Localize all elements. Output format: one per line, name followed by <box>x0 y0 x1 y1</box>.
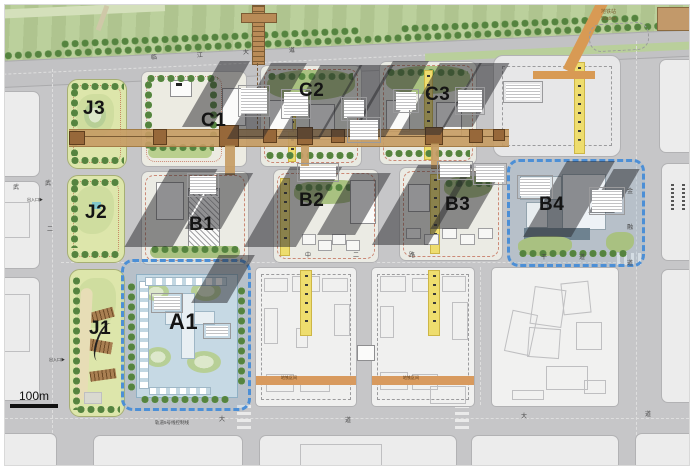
parcel-label-j2: J2 <box>85 203 107 222</box>
city-block <box>5 277 40 401</box>
road-label-middle: 中 <box>305 253 311 259</box>
building-outline <box>5 294 30 352</box>
metro-section-note: 地铁区间 <box>281 375 297 380</box>
city-block <box>5 91 40 177</box>
road-label-top: 大 <box>243 50 249 56</box>
development-block <box>491 267 619 407</box>
building-outline <box>560 281 591 316</box>
annotation-box <box>393 89 419 113</box>
parcel-label-c3: C3 <box>425 85 450 104</box>
annotation-box <box>238 85 270 117</box>
road-label-top: 临 <box>151 55 157 61</box>
retail-strip <box>139 281 149 389</box>
lot-code-text <box>682 184 685 212</box>
parcel-label-b2: B2 <box>299 191 324 210</box>
deck-structure <box>153 129 167 145</box>
building-outline <box>576 322 602 350</box>
tree-row <box>76 404 120 415</box>
rail-control-note: 轨道5号线控制线 <box>155 420 189 426</box>
building-outline <box>264 308 278 344</box>
city-block <box>259 435 457 465</box>
sports-court <box>84 392 102 404</box>
metro-corridor <box>256 376 356 385</box>
deck-structure <box>69 131 85 145</box>
building-outline <box>430 386 466 404</box>
annotation-box <box>503 81 543 103</box>
tree-row <box>70 155 124 166</box>
building-outline <box>5 202 30 238</box>
city-block <box>661 163 689 261</box>
parcel-label-a1: A1 <box>169 311 198 333</box>
lot-code-text <box>671 184 674 212</box>
city-block <box>471 435 619 465</box>
station-label-line1: 地铁站 <box>601 9 617 16</box>
metro-section-note: 地铁区间 <box>403 375 419 380</box>
city-block <box>659 59 689 153</box>
parcel-label-b4: B4 <box>539 195 564 214</box>
building-outline <box>300 444 382 465</box>
entry-note-j1: 出入口▶ <box>49 357 65 362</box>
metro-entrance <box>357 345 375 361</box>
building-outline <box>380 306 394 338</box>
deck-structure <box>493 129 505 141</box>
site-plan-map: J3 J2 J1 C1 C2 C3 B1 B2 B3 B4 A1 临 江 大 道… <box>5 5 689 465</box>
road-label-west: 武 <box>13 185 19 191</box>
scale-bar <box>10 404 58 408</box>
building-outline <box>334 304 350 336</box>
greenway-strip <box>300 270 312 336</box>
park-j3 <box>67 79 127 169</box>
tree-row <box>518 248 628 259</box>
annotation-box <box>203 323 231 339</box>
metro-corridor <box>372 376 474 385</box>
building-outline <box>380 276 406 292</box>
road-center-line <box>52 69 53 433</box>
pedestrian-link <box>533 71 595 79</box>
crosswalk <box>455 405 469 431</box>
road-center-line <box>480 267 481 405</box>
building-outline <box>322 278 348 292</box>
road-label-middle: 二 <box>353 253 359 259</box>
parcel-label-c2: C2 <box>299 81 324 100</box>
annotation-box <box>347 117 381 143</box>
building-outline <box>546 366 588 390</box>
greenway-strip <box>428 270 440 336</box>
road-label-middle: 路 <box>409 253 415 259</box>
road-label-top: 江 <box>197 53 203 59</box>
terrace-steps <box>89 368 116 382</box>
parcel-label-j1: J1 <box>89 319 111 338</box>
residential-block <box>371 267 475 407</box>
annotation-box <box>473 163 507 185</box>
road-label-middle-east: 道 <box>579 255 585 261</box>
building-outline <box>584 380 606 394</box>
building-outline <box>512 390 544 400</box>
tree-row <box>69 184 80 248</box>
park-j1 <box>69 269 125 417</box>
station-outline <box>588 21 649 52</box>
city-block <box>5 181 40 269</box>
residential-block <box>255 267 357 407</box>
road-label-bottom: 大 <box>521 414 527 420</box>
road-label-right: 道 <box>627 261 633 267</box>
tree-row <box>265 150 355 161</box>
annotation-box <box>187 173 219 197</box>
tree-row <box>70 249 120 260</box>
city-block <box>635 433 689 465</box>
annotation-box <box>589 187 625 215</box>
spine-branch <box>225 145 235 175</box>
road-label-bottom: 道 <box>345 418 351 424</box>
annotation-box <box>297 163 339 182</box>
master-plan-screenshot: J3 J2 J1 C1 C2 C3 B1 B2 B3 B4 A1 临 江 大 道… <box>0 0 694 470</box>
tree-row <box>236 286 247 386</box>
building-outline <box>264 278 288 292</box>
station-building <box>657 7 689 31</box>
station-label: 地铁站 Station <box>601 9 617 22</box>
parcel-label-c1: C1 <box>201 111 226 130</box>
road-label-left: 武 <box>45 181 51 187</box>
road-label-bottom: 大 <box>219 417 225 423</box>
tree-row <box>140 394 230 405</box>
road-label-bottom: 道 <box>645 412 651 418</box>
city-block <box>93 435 243 465</box>
road-label-right: 融 <box>627 225 633 231</box>
road-label-right: 金 <box>627 189 633 195</box>
annotation-box <box>437 161 473 180</box>
entry-note-j2: 出入口▶ <box>27 197 43 202</box>
tree-row <box>126 282 137 392</box>
parcel-label-j3: J3 <box>83 99 105 118</box>
tree-row <box>71 276 82 410</box>
station-label-line2: Station <box>601 16 617 23</box>
road-label-left: 二 <box>47 227 53 233</box>
building-outline <box>442 276 466 292</box>
tree-row <box>384 148 470 159</box>
deck-structure <box>469 129 483 143</box>
parcel-label-b3: B3 <box>445 195 470 214</box>
scale-label: 100m <box>19 389 49 403</box>
city-block <box>661 269 689 403</box>
road-label-top: 道 <box>289 48 295 54</box>
building-outline <box>452 302 468 340</box>
parcel-label-b1: B1 <box>189 215 214 234</box>
city-block <box>5 433 57 465</box>
jogging-loop <box>73 85 121 163</box>
annotation-box <box>455 87 485 115</box>
road-label-middle-east: 干 <box>541 255 547 261</box>
footbridge-landing <box>241 13 277 23</box>
